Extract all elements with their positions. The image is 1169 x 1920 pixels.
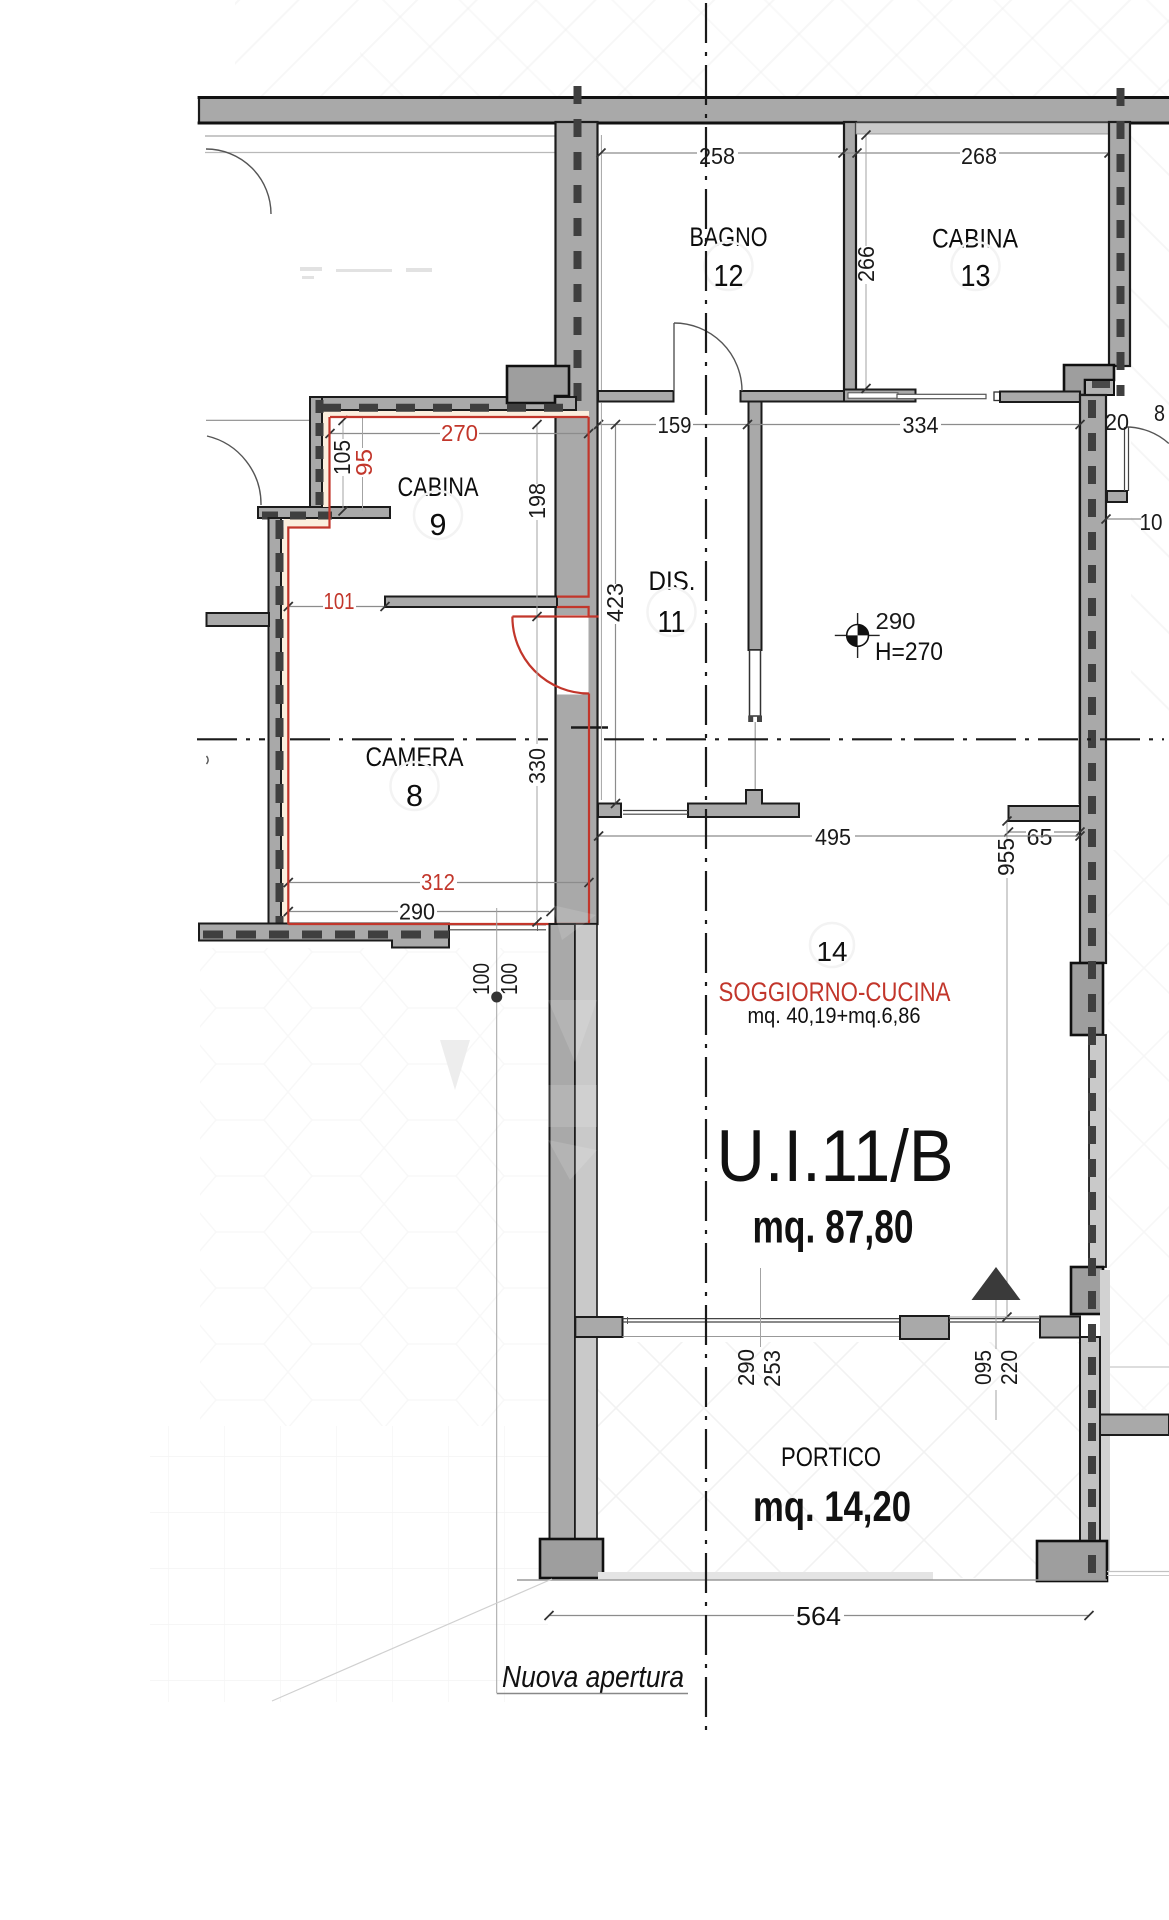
svg-text:12: 12 <box>714 258 744 293</box>
svg-text:PORTICO: PORTICO <box>781 1442 881 1472</box>
svg-text:100: 100 <box>468 963 494 995</box>
svg-text:270: 270 <box>441 420 478 446</box>
svg-text:290: 290 <box>399 899 435 925</box>
svg-text:mq. 14,20: mq. 14,20 <box>753 1483 911 1531</box>
svg-text:BAGNO: BAGNO <box>690 222 768 252</box>
svg-text:U.I.11/B: U.I.11/B <box>717 1116 954 1197</box>
svg-text:268: 268 <box>961 143 997 169</box>
svg-text:CAMERA: CAMERA <box>366 742 464 772</box>
svg-text:266: 266 <box>853 246 879 282</box>
svg-text:95: 95 <box>351 449 377 476</box>
svg-text:CABINA: CABINA <box>398 472 479 502</box>
svg-text:101: 101 <box>324 588 355 614</box>
svg-text:495: 495 <box>815 824 851 850</box>
svg-text:9: 9 <box>430 507 447 542</box>
svg-text:290: 290 <box>876 608 916 634</box>
svg-text:290: 290 <box>733 1349 759 1386</box>
svg-text:100: 100 <box>496 963 522 995</box>
svg-text:253: 253 <box>759 1350 785 1387</box>
svg-text:8: 8 <box>1154 400 1165 426</box>
svg-text:DIS.: DIS. <box>649 566 696 596</box>
svg-text:H=270: H=270 <box>875 638 943 666</box>
svg-text:Nuova apertura: Nuova apertura <box>502 1659 684 1694</box>
svg-text:955: 955 <box>993 838 1019 876</box>
svg-text:8: 8 <box>406 778 423 813</box>
svg-text:312: 312 <box>421 869 455 895</box>
svg-text:13: 13 <box>961 258 991 293</box>
svg-text:14: 14 <box>817 936 848 967</box>
svg-text:20: 20 <box>1105 409 1129 435</box>
svg-text:334: 334 <box>903 412 939 438</box>
svg-text:CABINA: CABINA <box>932 224 1018 254</box>
svg-text:564: 564 <box>796 1601 841 1631</box>
svg-text:11: 11 <box>658 604 686 639</box>
svg-text:423: 423 <box>602 583 628 622</box>
svg-text:mq. 40,19+mq.6,86: mq. 40,19+mq.6,86 <box>748 1003 921 1028</box>
svg-text:65: 65 <box>1027 824 1053 850</box>
svg-text:mq. 87,80: mq. 87,80 <box>753 1200 914 1252</box>
svg-text:220: 220 <box>996 1350 1022 1385</box>
svg-text:330: 330 <box>524 748 550 784</box>
svg-text:159: 159 <box>658 412 692 438</box>
svg-text:198: 198 <box>524 483 550 519</box>
svg-text:095: 095 <box>970 1350 996 1385</box>
svg-text:10: 10 <box>1140 509 1163 535</box>
svg-text:258: 258 <box>699 143 735 169</box>
